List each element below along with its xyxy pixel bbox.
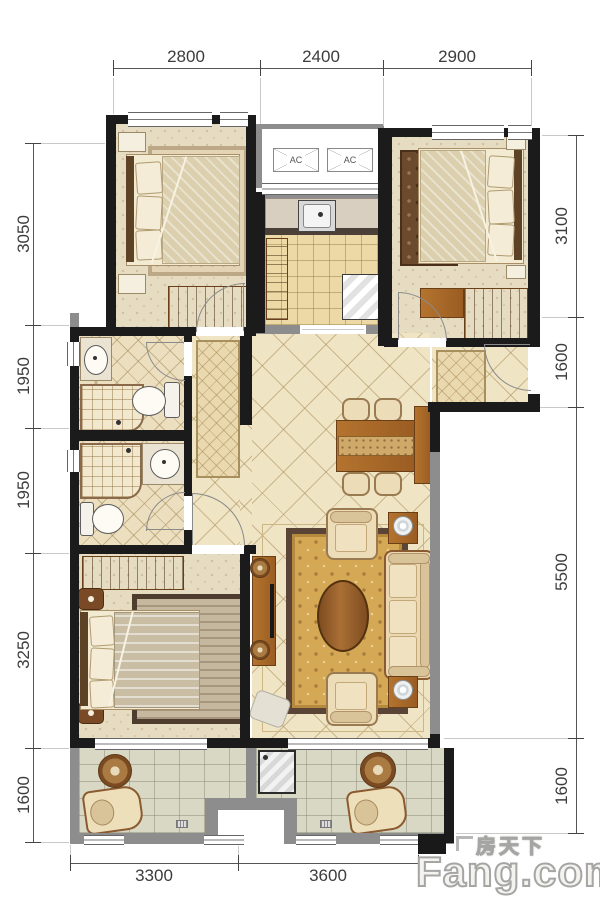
blanket bbox=[420, 150, 486, 262]
wall bbox=[384, 338, 398, 347]
headboard bbox=[126, 156, 134, 262]
balcony-planter bbox=[98, 754, 132, 788]
railing-window bbox=[296, 835, 336, 845]
armchair bbox=[326, 508, 378, 560]
wall bbox=[70, 545, 79, 738]
bathroom-sink bbox=[150, 449, 180, 479]
dim-tick bbox=[531, 60, 532, 76]
nightstand bbox=[118, 274, 146, 294]
wall bbox=[106, 115, 116, 335]
shower-faucet bbox=[116, 420, 121, 425]
dim-label-right-2: 1600 bbox=[552, 322, 572, 402]
floor-drain bbox=[320, 820, 332, 828]
hallway-runner-rug bbox=[196, 340, 240, 478]
nightstand bbox=[506, 265, 526, 279]
window bbox=[220, 112, 248, 127]
wall bbox=[246, 115, 256, 335]
dining-chair bbox=[374, 398, 402, 422]
dim-line-top bbox=[113, 68, 532, 69]
floor-drain bbox=[176, 820, 188, 828]
wall bbox=[240, 335, 252, 425]
pillow bbox=[487, 155, 515, 189]
dim-tick bbox=[568, 738, 584, 739]
lamp bbox=[88, 710, 94, 716]
lounge-pillow bbox=[89, 798, 116, 827]
coffee-table bbox=[317, 580, 369, 652]
pillow bbox=[89, 647, 115, 680]
dim-tick bbox=[238, 855, 239, 871]
sofa-armrest bbox=[388, 553, 430, 564]
washer-knob bbox=[263, 755, 268, 760]
dim-extension bbox=[41, 842, 69, 843]
dim-tick bbox=[25, 842, 41, 843]
dim-label-bottom-1: 3300 bbox=[114, 866, 194, 886]
wall bbox=[240, 553, 250, 738]
entry-door-leaf bbox=[484, 344, 530, 345]
dim-extension bbox=[41, 553, 69, 554]
wall bbox=[528, 128, 540, 346]
wall bbox=[70, 327, 196, 336]
dim-extension bbox=[531, 78, 532, 126]
fridge bbox=[342, 274, 380, 320]
dim-tick bbox=[25, 553, 41, 554]
dining-chair bbox=[374, 472, 402, 496]
dim-extension bbox=[41, 428, 69, 429]
toilet-tank bbox=[164, 382, 180, 418]
kitchen-sink bbox=[298, 200, 336, 232]
dim-tick bbox=[260, 60, 261, 76]
balcony-slider-window bbox=[95, 738, 207, 750]
window bbox=[128, 112, 212, 127]
wall bbox=[256, 124, 262, 188]
wall bbox=[70, 545, 192, 554]
sofa-cushion bbox=[389, 600, 417, 634]
dim-label-right-4: 1600 bbox=[552, 746, 572, 826]
dim-label-left-1: 3050 bbox=[14, 194, 34, 274]
bathroom2-door-gap bbox=[184, 496, 192, 530]
decor-plate bbox=[393, 516, 413, 536]
railing-window bbox=[84, 835, 124, 845]
sofa bbox=[384, 550, 434, 680]
wall bbox=[184, 530, 192, 545]
dim-line-right bbox=[576, 135, 577, 834]
armchair-back bbox=[330, 711, 372, 723]
watermark: 房天下 Fang.com bbox=[414, 826, 600, 900]
tv bbox=[270, 584, 274, 638]
sofa-cushion bbox=[389, 636, 417, 670]
decor-plate bbox=[393, 680, 413, 700]
plant bbox=[250, 558, 270, 578]
pillow bbox=[135, 161, 163, 195]
window bbox=[67, 450, 80, 472]
dim-label-top-3: 2900 bbox=[417, 47, 497, 67]
bathroom-sink bbox=[84, 345, 108, 375]
faucet bbox=[93, 356, 97, 360]
dim-extension bbox=[41, 143, 105, 144]
faucet bbox=[318, 212, 323, 217]
dim-tick bbox=[568, 407, 584, 408]
dim-tick bbox=[568, 317, 584, 318]
dim-extension bbox=[41, 325, 69, 326]
wardrobe bbox=[464, 288, 528, 340]
dim-label-bottom-2: 3600 bbox=[288, 866, 368, 886]
wall bbox=[428, 402, 540, 412]
lamp bbox=[88, 596, 94, 602]
armchair-back bbox=[330, 511, 372, 523]
bedroom-topright-door-leaf bbox=[398, 292, 399, 340]
ac-unit-left: AC bbox=[273, 148, 319, 172]
shower-faucet bbox=[126, 448, 131, 453]
sofa-cushion bbox=[389, 564, 417, 598]
dim-label-right-1: 3100 bbox=[552, 186, 572, 266]
kitchen-tall-cabinet bbox=[266, 238, 288, 320]
dining-chair bbox=[342, 472, 370, 496]
railing-window bbox=[204, 835, 244, 845]
ac-unit-right-label: AC bbox=[341, 155, 360, 165]
master-door-gap bbox=[192, 545, 244, 554]
balcony-slider-window bbox=[288, 738, 428, 750]
wall bbox=[184, 335, 192, 342]
pillow bbox=[487, 189, 515, 224]
dim-label-left-2: 1950 bbox=[14, 336, 34, 416]
dim-tick bbox=[70, 855, 71, 871]
pillow bbox=[135, 195, 163, 230]
plant bbox=[250, 640, 270, 660]
entry-mat bbox=[436, 350, 486, 404]
dim-tick bbox=[113, 60, 114, 76]
headboard bbox=[80, 612, 88, 706]
armchair-cushion bbox=[335, 682, 367, 710]
dim-label-left-4: 3250 bbox=[14, 610, 34, 690]
faucet bbox=[162, 460, 166, 464]
armchair bbox=[326, 672, 378, 726]
sofa-backrest bbox=[420, 560, 430, 668]
window bbox=[432, 125, 504, 140]
dim-label-top-2: 2400 bbox=[281, 47, 361, 67]
dim-extension bbox=[41, 748, 69, 749]
window bbox=[508, 125, 532, 140]
kitchen-threshold bbox=[302, 329, 364, 330]
lounge-pillow bbox=[353, 798, 380, 827]
dim-tick bbox=[25, 748, 41, 749]
window bbox=[67, 342, 80, 366]
dim-extension bbox=[542, 135, 568, 136]
pillow bbox=[89, 615, 115, 647]
watermark-english-text: Fang.com bbox=[416, 848, 600, 896]
ac-unit-left-label: AC bbox=[287, 155, 306, 165]
dim-extension bbox=[444, 738, 568, 739]
table-runner bbox=[338, 436, 414, 456]
balcony-planter bbox=[360, 752, 396, 788]
dim-label-left-3: 1950 bbox=[14, 450, 34, 530]
bathroom1-door-leaf bbox=[146, 342, 184, 343]
wall bbox=[256, 192, 265, 333]
dim-extension bbox=[383, 78, 384, 126]
nightstand bbox=[78, 588, 104, 610]
floor-plan: 2800 2400 2900 3050 1950 1950 3250 1600 bbox=[0, 0, 600, 900]
nightstand bbox=[118, 132, 146, 152]
dim-line-bottom bbox=[70, 863, 419, 864]
window bbox=[262, 183, 378, 195]
balcony-divider-wall bbox=[246, 748, 256, 800]
wall bbox=[430, 402, 440, 452]
wall bbox=[70, 748, 79, 834]
dim-tick bbox=[25, 143, 41, 144]
sink-basin bbox=[303, 204, 331, 228]
toilet-bowl bbox=[132, 386, 166, 416]
armchair-cushion bbox=[335, 524, 367, 552]
dim-tick bbox=[25, 428, 41, 429]
dim-extension bbox=[70, 845, 71, 855]
headboard bbox=[514, 150, 522, 260]
dim-tick bbox=[25, 325, 41, 326]
wall bbox=[70, 430, 192, 441]
bathroom2-door-leaf bbox=[146, 529, 184, 530]
dining-chair bbox=[342, 398, 370, 422]
dim-label-top-1: 2800 bbox=[146, 47, 226, 67]
dim-extension bbox=[260, 78, 261, 124]
bathroom1-door-gap bbox=[184, 342, 192, 376]
wardrobe bbox=[82, 556, 184, 590]
dim-tick bbox=[568, 135, 584, 136]
toilet-bowl bbox=[92, 504, 124, 534]
dim-extension bbox=[113, 78, 114, 114]
bedroom-topleft-door-leaf bbox=[243, 283, 244, 331]
master-door-leaf bbox=[192, 493, 193, 545]
wall bbox=[528, 394, 540, 412]
dim-label-left-5: 1600 bbox=[14, 755, 34, 835]
wall bbox=[378, 128, 392, 346]
ac-unit-right: AC bbox=[327, 148, 373, 172]
dim-extension bbox=[238, 846, 239, 855]
wall bbox=[256, 124, 384, 129]
dim-label-right-3: 5500 bbox=[552, 532, 572, 612]
shower bbox=[80, 443, 142, 499]
washing-machine bbox=[258, 750, 296, 794]
blanket bbox=[162, 156, 240, 264]
dim-extension bbox=[542, 317, 568, 318]
window-wall bbox=[430, 452, 440, 734]
wall bbox=[184, 376, 192, 496]
dim-extension bbox=[540, 407, 568, 408]
dim-tick bbox=[383, 60, 384, 76]
